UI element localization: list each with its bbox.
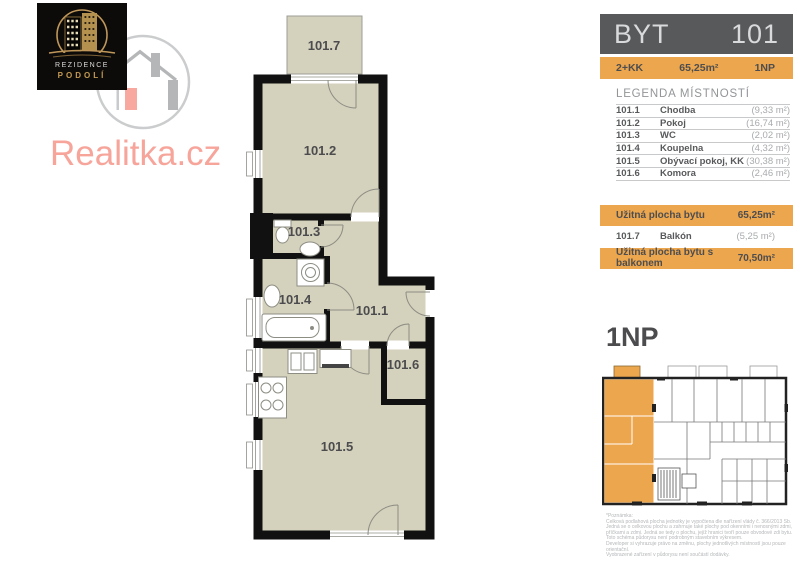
usable-area-row: Užitná plocha bytu 65,25m² bbox=[600, 205, 793, 226]
disposition: 2+KK bbox=[616, 62, 643, 74]
floor-overview-map bbox=[602, 364, 792, 508]
room-label-101-1: 101.1 bbox=[356, 303, 389, 318]
room-label-101-4: 101.4 bbox=[279, 292, 312, 307]
legend-row: 101.3 WC (2,02 m²) bbox=[616, 129, 790, 142]
room-label-101-7: 101.7 bbox=[308, 38, 341, 53]
stove bbox=[259, 377, 287, 418]
room-label-101-5: 101.5 bbox=[321, 439, 354, 454]
disclaimer-note: *Poznámka: Celková podlahová plocha jedn… bbox=[606, 514, 796, 559]
page: REZIDENCE PODOLÍ Realitka.cz bbox=[0, 0, 800, 566]
rezidence-podoli-logo: REZIDENCE PODOLÍ bbox=[37, 3, 127, 90]
apartment-number: 101 bbox=[731, 19, 779, 50]
bath-sink bbox=[264, 285, 280, 307]
area-summary: Užitná plocha bytu 65,25m² 101.7 Balkón … bbox=[600, 205, 793, 269]
legend-row: 101.1 Chodba (9,33 m²) bbox=[616, 104, 790, 117]
legend-row: 101.5 Obývací pokoj, KK (30,38 m²) bbox=[616, 154, 790, 167]
legend-row: 101.4 Koupelna (4,32 m²) bbox=[616, 142, 790, 155]
logo-line2: PODOLÍ bbox=[58, 71, 107, 80]
info-panel: BYT 101 2+KK 65,25m² 1NP LEGENDA MÍSTNOS… bbox=[600, 14, 793, 269]
floor-plan: 101.7 101.2 101.3 101.4 101.1 101.6 101.… bbox=[240, 8, 540, 558]
apartment-title-left: BYT bbox=[614, 19, 670, 50]
wc-sink bbox=[300, 242, 320, 256]
apartment-title-bar: BYT 101 bbox=[600, 14, 793, 54]
total-area-row: Užitná plocha bytu s balkonem 70,50m² bbox=[600, 248, 793, 269]
legend-heading: LEGENDA MÍSTNOSTÍ bbox=[616, 88, 793, 100]
apartment-facts-bar: 2+KK 65,25m² 1NP bbox=[600, 57, 793, 79]
logo-line1: REZIDENCE bbox=[55, 62, 109, 69]
room-label-101-2: 101.2 bbox=[304, 143, 337, 158]
disclaimer-line: Vyobrazené zařízení v půdorysu není souč… bbox=[606, 553, 796, 559]
apartment-floor: 1NP bbox=[755, 62, 775, 74]
legend-row: 101.2 Pokoj (16,74 m²) bbox=[616, 117, 790, 130]
room-label-101-6: 101.6 bbox=[387, 357, 420, 372]
floor-heading: 1NP bbox=[606, 322, 659, 353]
shaft-block bbox=[250, 213, 273, 259]
legend-row: 101.6 Komora (2,46 m²) bbox=[616, 167, 790, 181]
apartment-outline bbox=[258, 79, 430, 535]
balcony-row: 101.7 Balkón (5,25 m²) bbox=[600, 227, 793, 247]
apartment-area: 65,25m² bbox=[679, 62, 718, 74]
brand-wordmark: Realitka.cz bbox=[50, 134, 221, 174]
legend-table: 101.1 Chodba (9,33 m²) 101.2 Pokoj (16,7… bbox=[616, 104, 790, 181]
room-label-101-3: 101.3 bbox=[288, 224, 321, 239]
